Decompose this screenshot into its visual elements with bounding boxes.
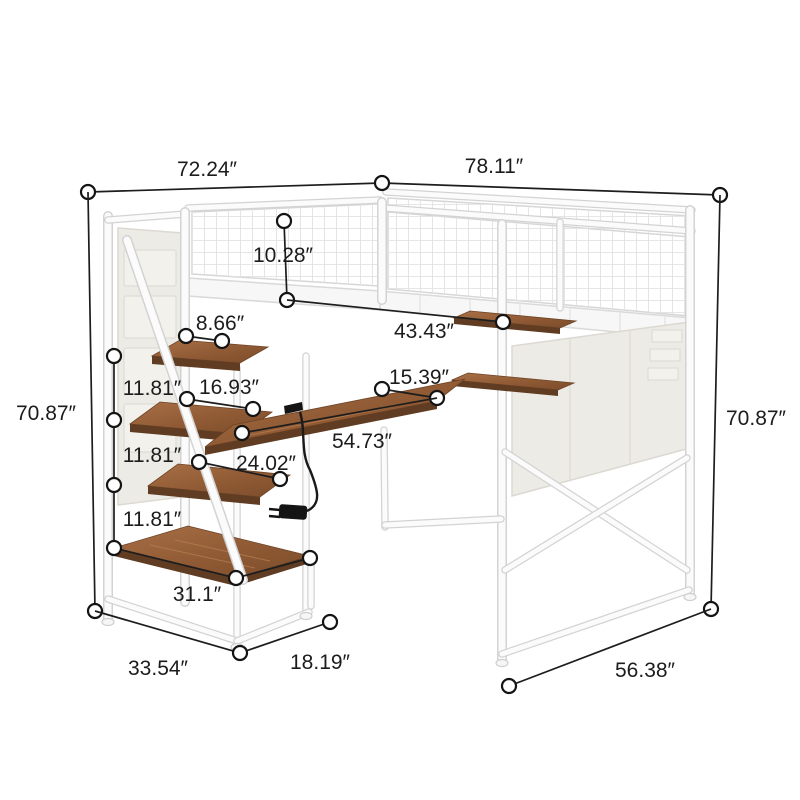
dim-label-top-step-depth: 8.66″ xyxy=(196,312,245,335)
dimension-staircase-base: 33.54″ 18.19″ xyxy=(95,611,351,680)
dim-label-height-right: 70.87″ xyxy=(726,407,787,430)
dim-label-staircase-width: 18.19″ xyxy=(290,651,351,674)
dimension-height-right: 70.87″ xyxy=(704,195,787,616)
dim-label-base-depth-right: 56.38″ xyxy=(615,659,676,682)
dim-label-step-length: 16.93″ xyxy=(199,376,260,399)
dim-label-under-bed-width: 43.43″ xyxy=(394,320,455,343)
dim-label-overall-width-top: 78.11″ xyxy=(465,155,524,178)
dim-label-guardrail-height: 10.28″ xyxy=(253,244,314,267)
dim-label-desk-length: 54.73″ xyxy=(332,430,393,453)
dim-label-step-spacing-3: 11.81″ xyxy=(123,508,182,531)
product-dimension-diagram: 72.24″ 78.11″ 70.87″ 70.87″ 56.38″ 33.54… xyxy=(0,0,800,800)
dim-label-step-spacing-2: 11.81″ xyxy=(123,444,182,467)
dim-label-bottom-shelf-length: 31.1″ xyxy=(173,583,222,606)
dim-label-staircase-depth: 33.54″ xyxy=(128,657,189,680)
dim-label-overall-depth-top: 72.24″ xyxy=(177,158,238,181)
dim-label-side-shelf-length: 15.39″ xyxy=(389,366,450,389)
dim-label-step-spacing-1: 11.81″ xyxy=(123,377,182,400)
dim-label-height-left: 70.87″ xyxy=(16,402,77,425)
dim-label-lower-step-length: 24.02″ xyxy=(236,452,297,475)
dimension-height-left: 70.87″ xyxy=(16,192,102,618)
